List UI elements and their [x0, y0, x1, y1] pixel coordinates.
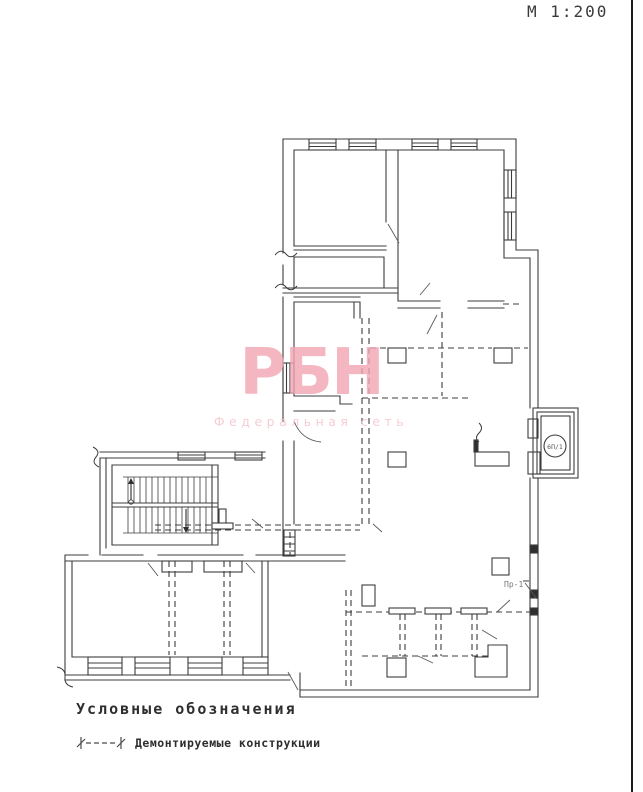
break-symbols	[57, 251, 482, 687]
legend-item-label: Демонтируемые конструкции	[135, 736, 321, 750]
sheet: М 1:200	[0, 0, 643, 792]
floor-plan-drawing: 6П/1 Пр-1	[0, 0, 643, 792]
legend-item: Демонтируемые конструкции	[76, 736, 321, 750]
door-swings	[148, 224, 537, 690]
walls-demolished	[155, 304, 530, 688]
plan-details	[88, 139, 578, 677]
shaft-label: 6П/1	[547, 443, 563, 451]
legend: Условные обозначения Демонтируемые конст…	[76, 700, 321, 750]
pr-label: Пр-1	[504, 580, 523, 589]
demolition-symbol-icon	[76, 736, 126, 750]
legend-title: Условные обозначения	[76, 700, 321, 718]
